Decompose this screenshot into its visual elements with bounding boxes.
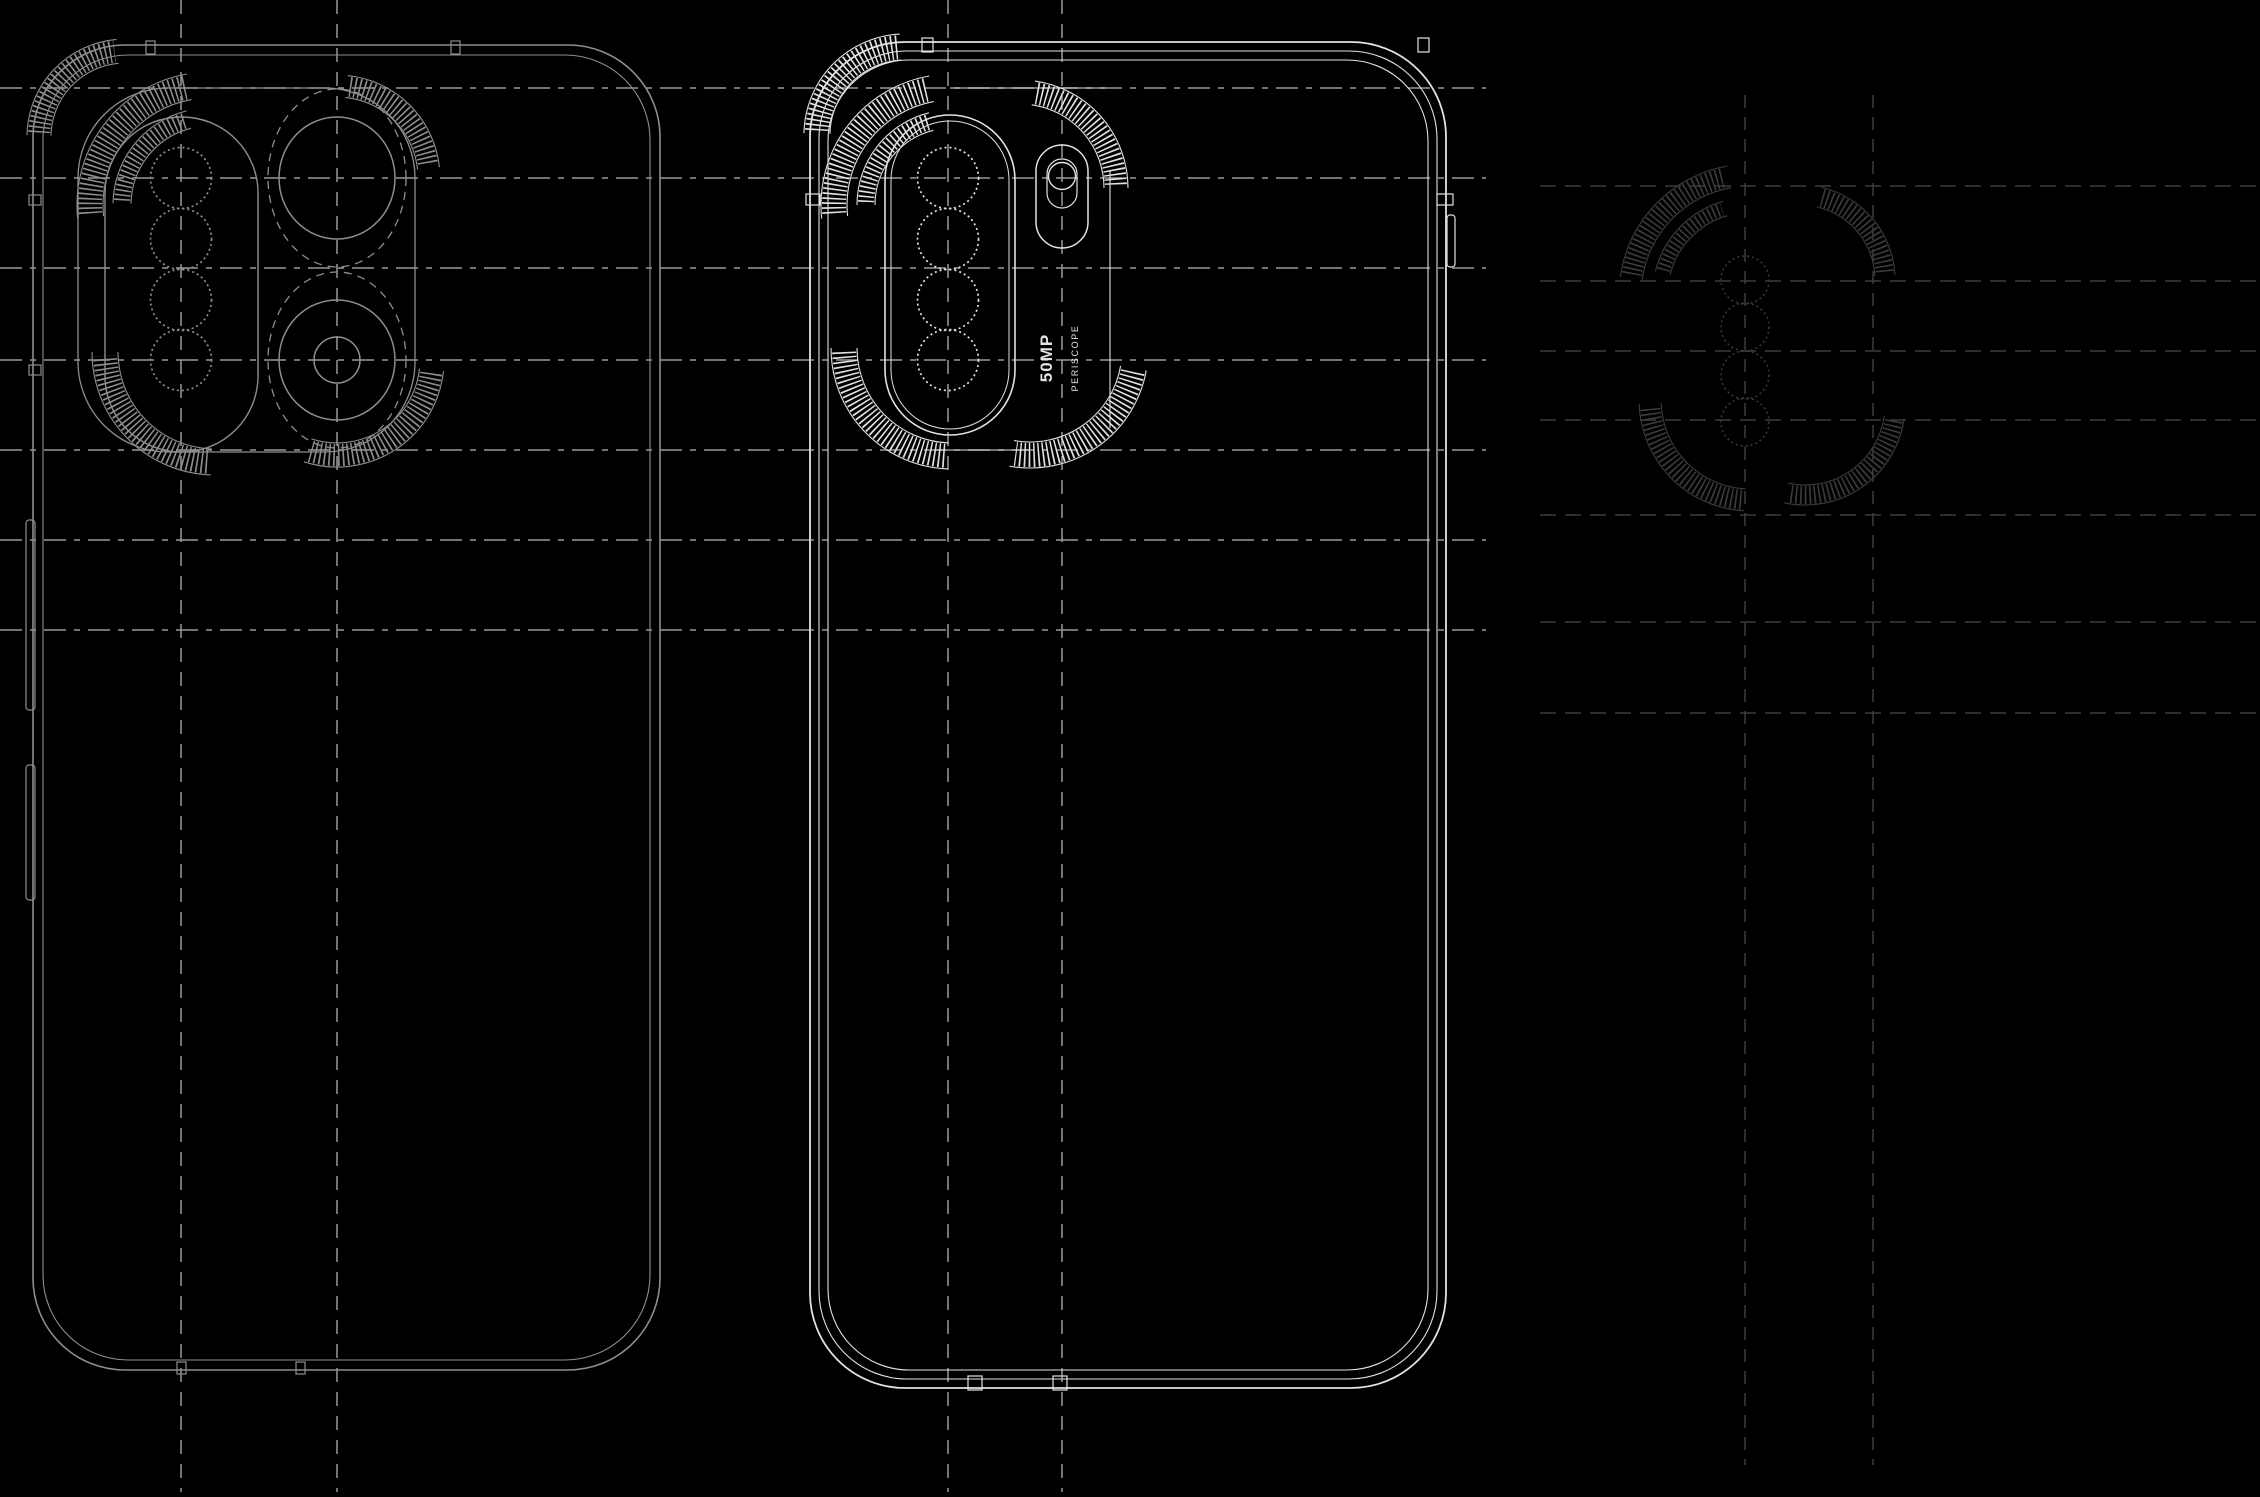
- camera-label-primary: 50MP: [1037, 334, 1056, 382]
- middle-lens-stadium-inner: [891, 121, 1009, 429]
- left-phone-outline-1: [33, 45, 660, 1370]
- detail-hatch-crescent: [1789, 421, 1893, 495]
- detail-hatch-crescent: [1822, 198, 1885, 273]
- left-phone-outline-2: [43, 55, 650, 1360]
- middle-crescent-inner-edge: [857, 348, 949, 443]
- middle-hatch-crescent: [866, 122, 928, 202]
- detail-hatch-crescent: [1632, 178, 1725, 275]
- blueprint-stage: 50MPPERISCOPE: [0, 0, 2260, 1497]
- left-phone-antenna-tick-top: [146, 41, 155, 54]
- blueprint-canvas: 50MPPERISCOPE: [0, 0, 2260, 1497]
- detail-crescent-inner-edge: [1788, 416, 1884, 485]
- left-phone-antenna-tick-side: [29, 195, 41, 205]
- middle-phone-outline-3: [828, 60, 1428, 1370]
- left-crescent-inner-edge: [131, 128, 191, 203]
- middle-phone-antenna-tick-top: [922, 38, 933, 52]
- middle-phone-antenna-tick-top: [1418, 38, 1429, 52]
- middle-phone-outline-2: [819, 51, 1437, 1379]
- left-camera-module-outline: [78, 88, 415, 452]
- detail-crescent-inner-edge: [1670, 216, 1727, 275]
- left-phone-antenna-tick-side: [29, 365, 41, 375]
- middle-lens-stadium: [885, 115, 1015, 435]
- left-hatch-crescent: [39, 52, 114, 133]
- middle-phone-antenna-tick-right: [1437, 194, 1453, 205]
- left-phone-antenna-tick-top: [451, 41, 460, 54]
- middle-phone-power-button: [1447, 215, 1455, 267]
- camera-label-secondary: PERISCOPE: [1070, 325, 1080, 392]
- left-hatch-crescent: [350, 87, 428, 165]
- left-phone-antenna-tick-bottom: [296, 1362, 305, 1374]
- middle-phone-antenna-tick-left: [806, 194, 820, 205]
- middle-phone-outline-1: [810, 42, 1446, 1388]
- detail-crescent-inner-edge: [1642, 188, 1731, 280]
